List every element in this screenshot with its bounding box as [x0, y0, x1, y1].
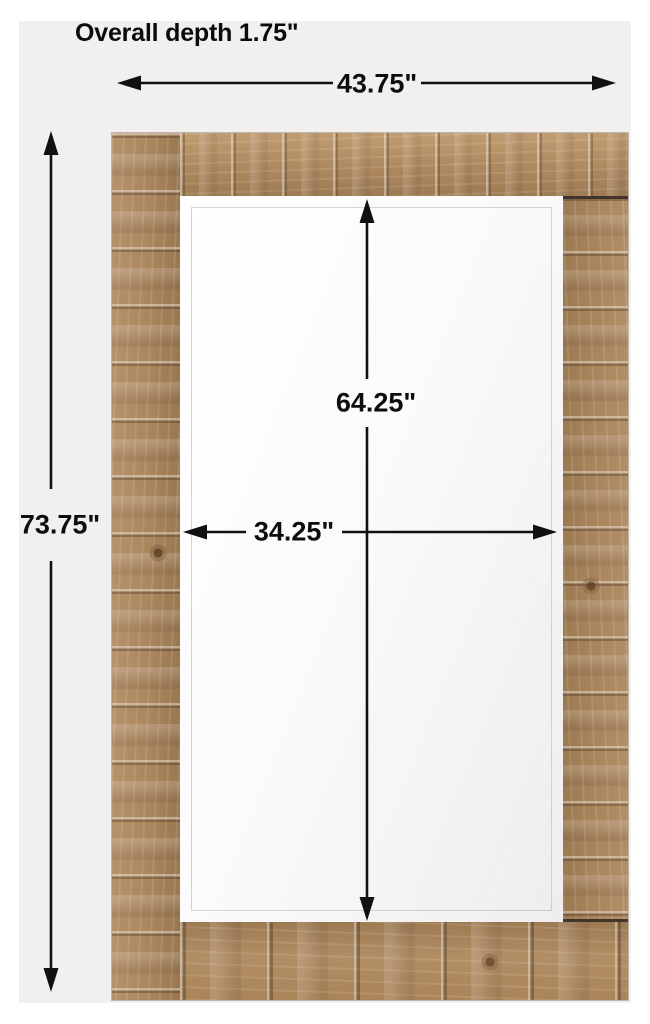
mirror-height-label: 64.25" [336, 388, 416, 419]
overall-height-label: 73.75" [20, 510, 100, 541]
arrow-up-icon [360, 199, 375, 223]
overall-height-dimension [44, 131, 59, 992]
arrow-right-icon [592, 76, 616, 91]
mirror-width-dimension [183, 525, 557, 540]
arrow-right-icon [533, 525, 557, 540]
arrow-left-icon [117, 76, 141, 91]
mirror-width-label: 34.25" [254, 517, 334, 548]
arrow-down-icon [360, 897, 375, 921]
arrow-down-icon [44, 968, 59, 992]
overall-width-label: 43.75" [337, 69, 417, 100]
mirror-height-dimension [360, 199, 375, 921]
arrow-up-icon [44, 131, 59, 155]
product-dimension-diagram: Overall depth 1.75" [0, 0, 650, 1024]
arrow-left-icon [183, 525, 207, 540]
